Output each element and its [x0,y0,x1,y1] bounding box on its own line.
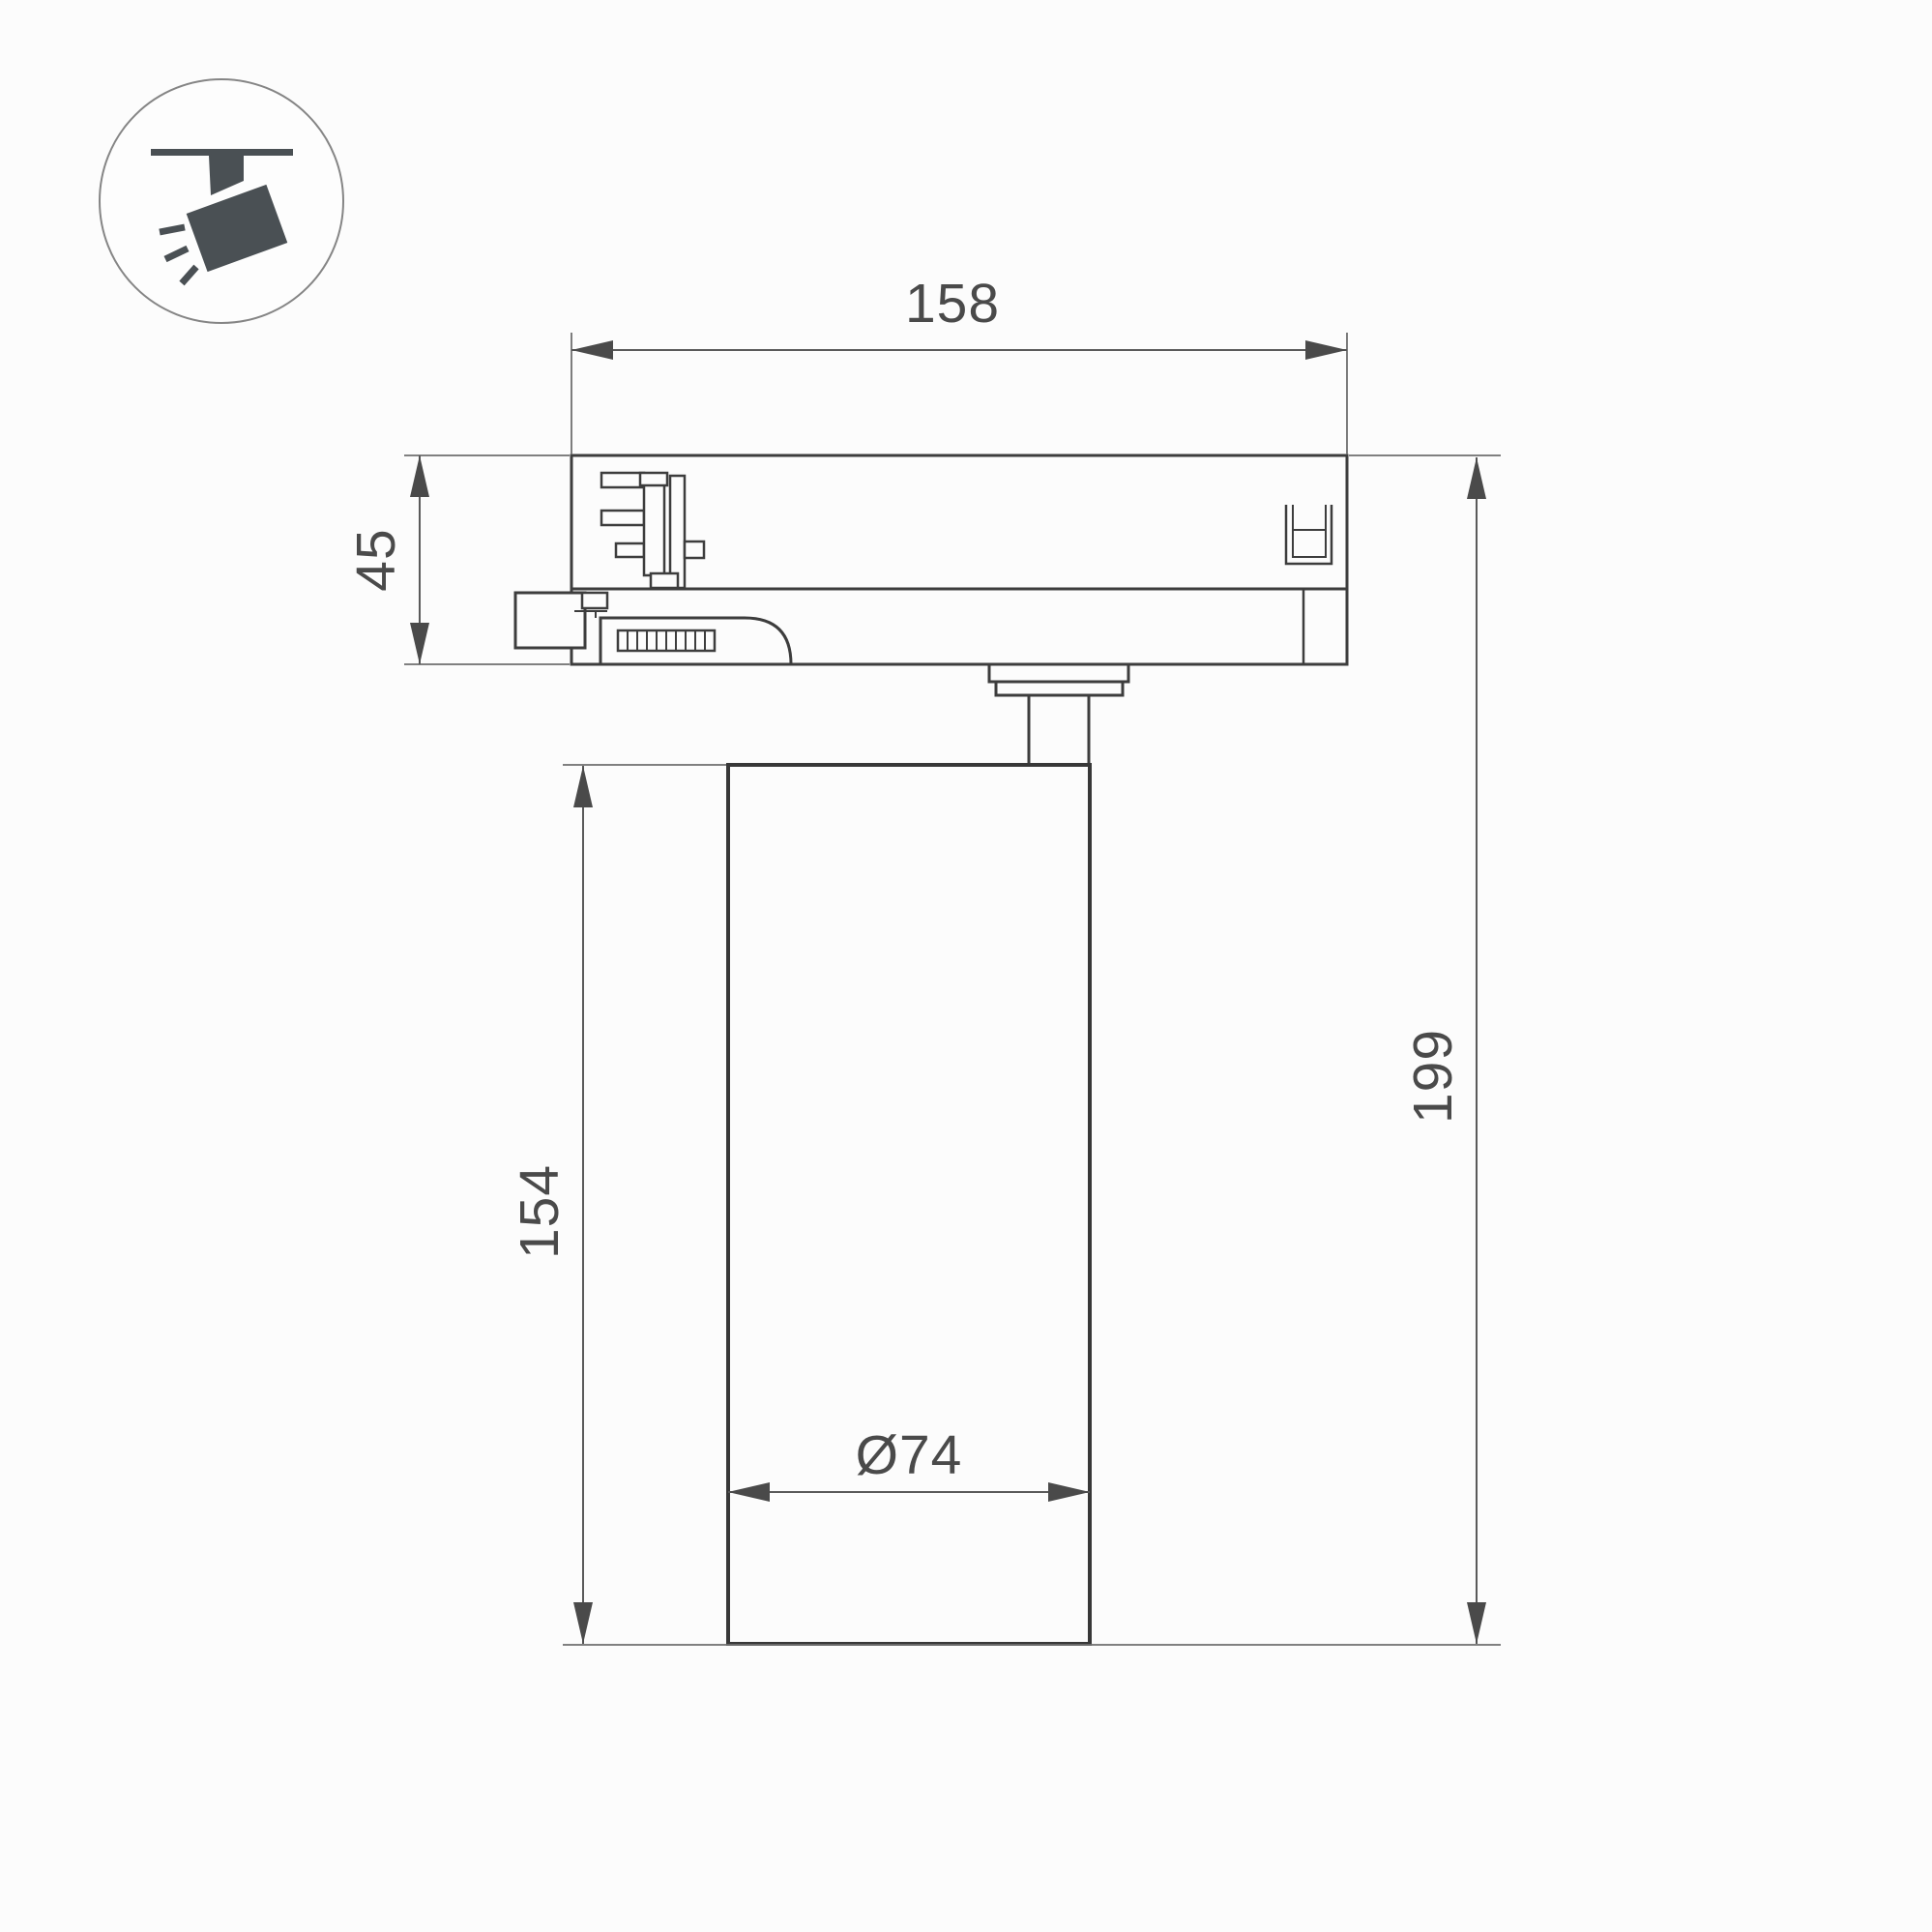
lamp-body-cylinder [728,765,1090,1644]
contact-right-bar [670,476,685,588]
swivel-neck [1029,695,1089,765]
contact-side-tab [685,542,704,558]
dimension-label-diameter: Ø74 [856,1424,963,1486]
arrowhead-down [573,1602,593,1644]
icon-light-ray [160,227,185,232]
swivel-flange-lower [996,682,1123,695]
contact-prong-bottom [616,543,644,557]
track-adapter [515,455,1347,664]
arrowhead-down [410,623,429,664]
latch-tab [582,593,607,608]
arrowhead-up [573,766,593,807]
dimension-label-body-height: 154 [509,1164,571,1259]
arrowhead-up [410,455,429,497]
arrowhead-right [1305,340,1347,360]
contact-mast-cap [640,473,667,485]
icon-track-bar [151,149,293,156]
dimension-label-total-height: 199 [1402,1029,1464,1124]
contact-mast [644,483,664,575]
dimension-label-width: 158 [905,273,1000,335]
swivel-flange-upper [989,664,1128,682]
arrowhead-down [1467,1602,1486,1644]
arrowhead-left [571,340,613,360]
dimension-body-height: 154 [509,765,726,1644]
dimension-width: 158 [571,273,1347,454]
contact-prong-middle [601,511,644,525]
adapter-upper-housing [571,455,1347,589]
technical-drawing-canvas: 158 45 154 199 [0,0,1932,1932]
dimension-label-adapter-height: 45 [345,528,407,591]
corner-icon [100,79,343,323]
arrowhead-up [1467,457,1486,499]
dimension-total-height: 199 [1349,455,1501,1644]
contact-foot [651,573,678,588]
contact-prong-top [601,473,644,487]
lock-latch [515,593,585,648]
